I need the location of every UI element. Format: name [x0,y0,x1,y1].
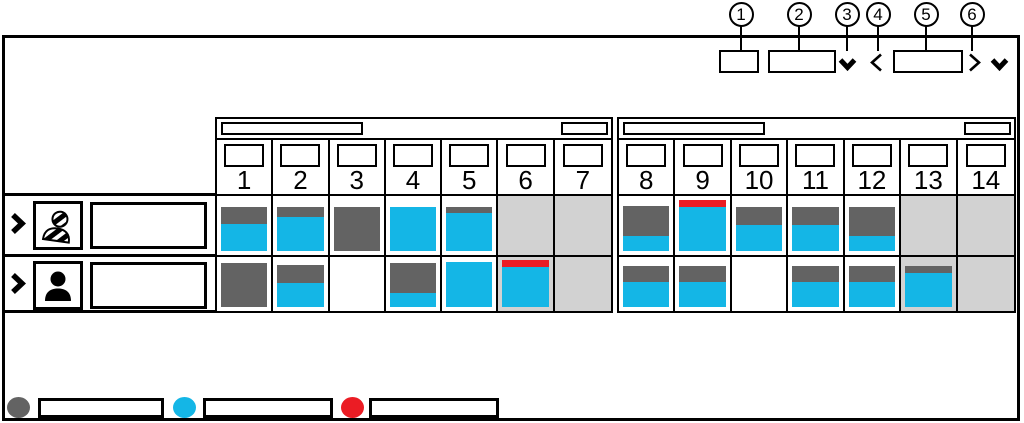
week-label-box [623,122,765,135]
day-name-box [966,144,1006,167]
schedule-cell-row2-day14[interactable] [958,257,1014,311]
week-sublabel-box [964,122,1011,135]
allocation-segment-dark [623,266,669,282]
callout-3: 3 [835,2,860,27]
day-header: 1 [217,140,271,196]
allocation-segment-cyan [623,236,669,251]
allocation-bar[interactable] [849,207,895,251]
allocation-segment-dark [277,265,323,283]
allocation-bar[interactable] [390,207,436,251]
allocation-segment-cyan [221,224,267,251]
day-name-box [449,144,489,167]
day-header: 5 [442,140,496,196]
day-column-6: 6 [498,140,554,311]
allocation-segment-cyan [736,225,782,251]
day-header: 14 [958,140,1014,196]
day-header: 6 [498,140,552,196]
legend-label-box [203,398,333,418]
schedule-cell-row1-day4[interactable] [386,196,440,257]
day-header: 12 [845,140,899,196]
allocation-segment-cyan [849,236,895,251]
person-icon [40,268,76,304]
schedule-cell-row2-day11[interactable] [788,257,842,311]
day-header: 2 [273,140,327,196]
striped-person-icon [40,208,76,244]
day-name-box [337,144,377,167]
day-number: 1 [217,166,271,194]
day-column-9: 9 [675,140,731,311]
period-selector[interactable] [893,50,963,73]
schedule-cell-row2-day8[interactable] [619,257,673,311]
allocation-segment-red [502,260,548,267]
allocation-segment-dark [623,206,669,236]
schedule-cell-row1-day14[interactable] [958,196,1014,257]
day-number: 8 [619,166,673,194]
day-column-12: 12 [845,140,901,311]
schedule-cell-row1-day9[interactable] [675,196,729,257]
schedule-cell-row2-day3[interactable] [330,257,384,311]
legend-label-box [369,398,499,418]
allocation-segment-dark [221,263,267,307]
resource-avatar-box [33,201,83,250]
callout-stem [798,26,800,51]
schedule-cell-row1-day6[interactable] [498,196,552,257]
schedule-cell-row2-day10[interactable] [732,257,786,311]
schedule-cell-row1-day7[interactable] [555,196,611,257]
day-number: 5 [442,166,496,194]
expand-row-chevron-icon[interactable] [10,212,27,235]
day-column-5: 5 [442,140,498,311]
allocation-segment-dark [736,207,782,225]
day-header: 11 [788,140,842,196]
schedule-cell-row2-day9[interactable] [675,257,729,311]
schedule-cell-row1-day10[interactable] [732,196,786,257]
week-sublabel-box [561,122,608,135]
day-number: 9 [675,166,729,194]
day-column-14: 14 [958,140,1014,311]
allocation-segment-cyan [679,207,725,251]
day-number: 14 [958,166,1014,194]
day-number: 3 [330,166,384,194]
allocation-bar[interactable] [390,263,436,307]
day-column-4: 4 [386,140,442,311]
allocation-segment-dark [277,207,323,217]
callout-stem [877,26,879,51]
day-name-box [563,144,603,167]
schedule-cell-row1-day8[interactable] [619,196,673,257]
schedule-cell-row2-day6[interactable] [498,257,552,311]
day-columns: 891011121314 [619,140,1014,311]
allocation-segment-dark [679,266,725,282]
schedule-cell-row2-day2[interactable] [273,257,327,311]
allocation-bar[interactable] [277,207,323,251]
schedule-cell-row2-day12[interactable] [845,257,899,311]
allocation-segment-cyan [679,282,725,307]
day-column-11: 11 [788,140,844,311]
callout-5: 5 [914,2,939,27]
allocation-segment-cyan [792,282,838,307]
day-name-box [739,144,779,167]
expand-row-chevron-icon[interactable] [10,272,27,295]
day-column-8: 8 [619,140,675,311]
day-header: 7 [555,140,611,196]
legend-swatch-dark [7,397,30,418]
allocation-segment-dark [792,207,838,225]
allocation-segment-cyan [277,217,323,251]
day-columns: 1234567 [217,140,611,311]
callout-6: 6 [960,2,985,27]
allocation-segment-cyan [390,207,436,251]
allocation-segment-dark [849,207,895,236]
allocation-bar[interactable] [446,207,492,251]
callout-1: 1 [729,2,754,27]
schedule-cell-row1-day1[interactable] [217,196,271,257]
scheduler-wireframe: 123456 [0,0,1024,423]
allocation-bar[interactable] [792,207,838,251]
day-number: 13 [901,166,955,194]
day-header: 4 [386,140,440,196]
day-column-2: 2 [273,140,329,311]
week-header-band [619,119,1014,140]
legend-label-box [38,398,164,418]
schedule-cell-row2-day4[interactable] [386,257,440,311]
allocation-segment-dark [792,266,838,282]
callout-stem [740,26,742,51]
allocation-bar[interactable] [679,266,725,307]
allocation-bar[interactable] [334,207,380,251]
chevron-down-icon[interactable] [990,57,1009,72]
view-dropdown[interactable] [768,50,836,73]
legend-swatch-red [341,397,364,418]
row-divider [5,193,215,196]
row-divider [5,254,215,257]
resource-avatar-box [33,261,83,310]
day-column-13: 13 [901,140,957,311]
day-header: 3 [330,140,384,196]
day-column-10: 10 [732,140,788,311]
week-table-2: 891011121314 [617,117,1016,313]
allocation-bar[interactable] [736,207,782,251]
allocation-bar[interactable] [623,206,669,251]
day-name-box [908,144,948,167]
day-name-box [506,144,546,167]
schedule-cell-row2-day1[interactable] [217,257,271,311]
allocation-bar[interactable] [792,266,838,307]
allocation-segment-cyan [277,283,323,307]
day-column-7: 7 [555,140,611,311]
day-name-box [795,144,835,167]
callout-stem [971,26,973,51]
day-column-3: 3 [330,140,386,311]
next-arrow-icon[interactable] [966,52,983,73]
day-number: 4 [386,166,440,194]
callout-2: 2 [787,2,812,27]
day-name-box [626,144,666,167]
schedule-cell-row2-day7[interactable] [555,257,611,311]
day-name-box [393,144,433,167]
day-name-box [683,144,723,167]
resource-name-box [90,202,207,249]
day-number: 10 [732,166,786,194]
allocation-segment-red [679,200,725,207]
chevron-down-icon[interactable] [838,57,857,72]
day-header: 10 [732,140,786,196]
schedule-cell-row1-day13[interactable] [901,196,955,257]
schedule-cell-row1-day12[interactable] [845,196,899,257]
allocation-segment-dark [221,207,267,224]
allocation-bar[interactable] [679,200,725,251]
allocation-segment-cyan [390,293,436,307]
row-divider [5,310,215,313]
allocation-segment-cyan [792,225,838,251]
allocation-bar[interactable] [221,263,267,307]
schedule-cell-row1-day5[interactable] [442,196,496,257]
day-number: 7 [555,166,611,194]
small-button[interactable] [719,50,759,73]
allocation-segment-cyan [502,267,548,307]
day-number: 11 [788,166,842,194]
resource-name-box [90,262,207,309]
week-label-box [221,122,363,135]
allocation-bar[interactable] [905,266,951,307]
schedule-cell-row1-day2[interactable] [273,196,327,257]
schedule-cell-row1-day11[interactable] [788,196,842,257]
prev-arrow-icon[interactable] [868,52,885,73]
callout-stem [925,26,927,51]
day-name-box [852,144,892,167]
allocation-segment-dark [905,266,951,273]
allocation-segment-dark [849,266,895,282]
allocation-bar[interactable] [502,260,548,307]
day-header: 8 [619,140,673,196]
day-name-box [224,144,264,167]
allocation-segment-cyan [905,273,951,307]
week-header-band [217,119,611,140]
allocation-bar[interactable] [446,262,492,307]
allocation-segment-cyan [446,213,492,251]
allocation-bar[interactable] [623,266,669,307]
allocation-bar[interactable] [277,265,323,307]
allocation-segment-cyan [623,282,669,307]
day-header: 9 [675,140,729,196]
legend-swatch-cyan [173,397,196,418]
callout-stem [846,26,848,51]
callout-4: 4 [866,2,891,27]
allocation-bar[interactable] [849,266,895,307]
day-number: 6 [498,166,552,194]
day-name-box [280,144,320,167]
allocation-bar[interactable] [221,207,267,251]
day-column-1: 1 [217,140,273,311]
schedule-cell-row2-day13[interactable] [901,257,955,311]
day-number: 12 [845,166,899,194]
allocation-segment-dark [390,263,436,293]
day-header: 13 [901,140,955,196]
allocation-segment-cyan [849,282,895,307]
schedule-cell-row2-day5[interactable] [442,257,496,311]
allocation-segment-dark [334,207,380,251]
week-table-1: 1234567 [215,117,613,313]
schedule-cell-row1-day3[interactable] [330,196,384,257]
allocation-segment-cyan [446,262,492,307]
day-number: 2 [273,166,327,194]
